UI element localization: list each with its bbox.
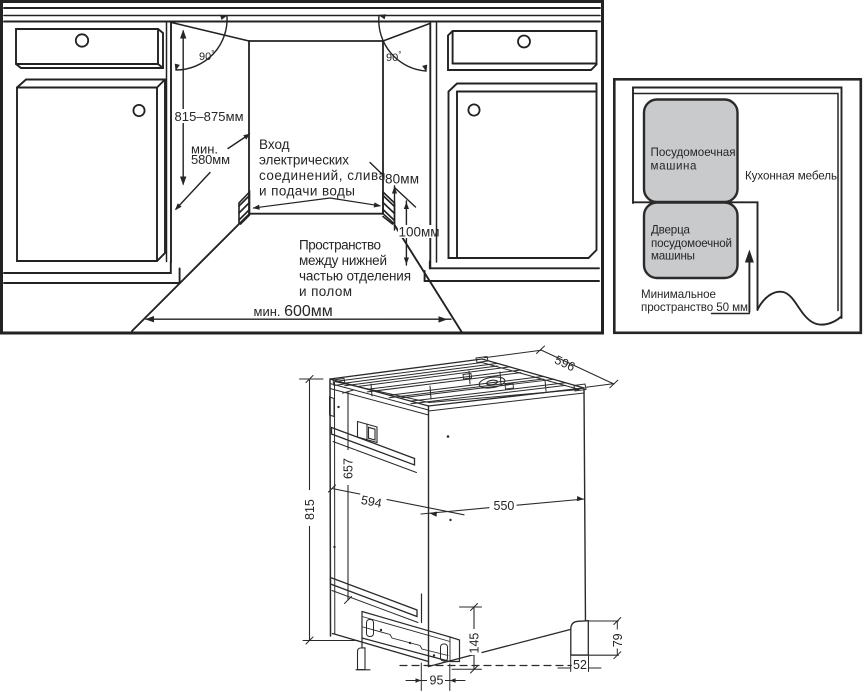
svg-text:Дверца: Дверца [651,224,691,237]
svg-text:145: 145 [468,633,482,654]
svg-text:815–875мм: 815–875мм [175,109,244,124]
svg-text:90°: 90° [199,49,214,63]
svg-text:машины: машины [651,250,695,263]
svg-text:между нижней: между нижней [299,253,387,268]
svg-text:80мм: 80мм [385,172,419,187]
svg-text:мин. 600мм: мин. 600мм [254,303,333,320]
svg-text:95: 95 [430,674,444,688]
svg-text:электрических: электрических [259,153,349,168]
svg-text:и подачи воды: и подачи воды [259,184,355,199]
svg-text:594: 594 [360,493,383,511]
svg-text:Минимальное: Минимальное [641,288,716,301]
svg-text:596: 596 [552,353,577,375]
svg-text:79: 79 [611,633,625,647]
svg-text:Пространство: Пространство [299,238,381,253]
svg-text:Кухонная мебель: Кухонная мебель [745,170,837,183]
svg-text:посудомоечной: посудомоечной [651,237,732,250]
svg-text:815: 815 [303,499,317,520]
svg-text:657: 657 [342,458,356,479]
svg-text:и полом: и полом [299,284,352,299]
svg-text:соединений, слива: соединений, слива [259,168,386,183]
svg-text:Вход: Вход [259,137,290,152]
svg-text:частью отделения: частью отделения [299,269,411,284]
svg-text:пространство 50 мм: пространство 50 мм [641,301,748,314]
svg-text:52: 52 [573,658,587,672]
svg-text:Посудомоечная: Посудомоечная [651,146,736,159]
svg-text:100мм: 100мм [399,225,440,240]
svg-text:550: 550 [494,499,515,513]
svg-text:580мм: 580мм [191,152,230,167]
svg-text:машина: машина [651,160,698,173]
